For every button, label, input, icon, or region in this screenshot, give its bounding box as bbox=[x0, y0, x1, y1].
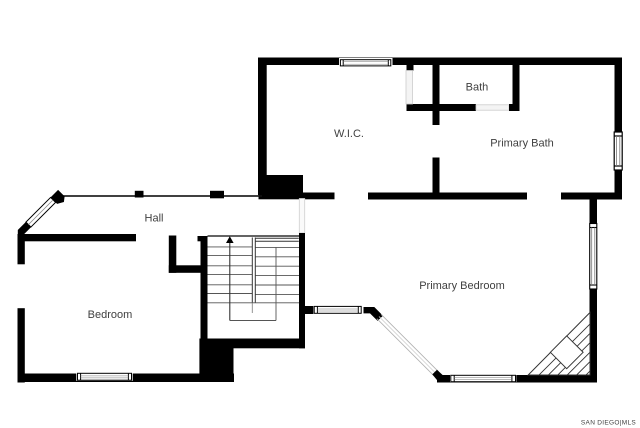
svg-text:W.I.C.: W.I.C. bbox=[334, 128, 364, 140]
svg-text:Primary Bedroom: Primary Bedroom bbox=[419, 280, 505, 292]
svg-text:SAN DIEGO|MLS: SAN DIEGO|MLS bbox=[581, 420, 636, 427]
svg-text:Bath: Bath bbox=[466, 82, 489, 94]
svg-text:Primary Bath: Primary Bath bbox=[490, 138, 554, 150]
svg-text:Bedroom: Bedroom bbox=[88, 309, 133, 321]
svg-text:Hall: Hall bbox=[145, 213, 164, 225]
